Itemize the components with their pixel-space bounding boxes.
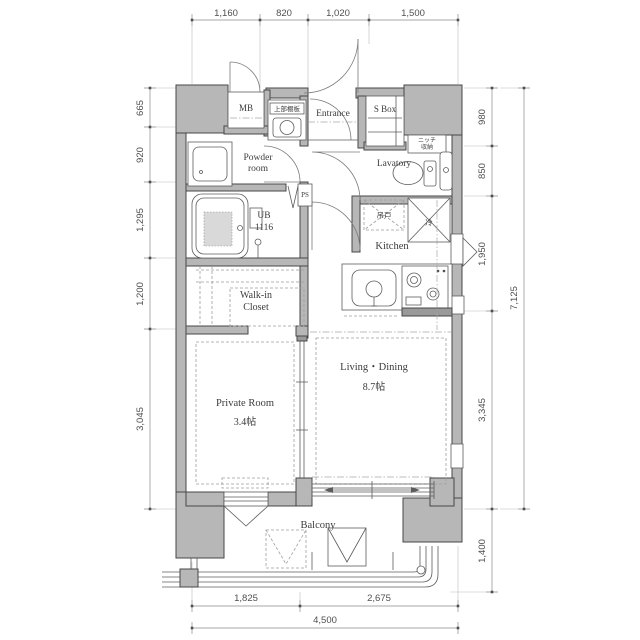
dim-left-5: 3,045 (135, 407, 146, 431)
bath-mat (204, 212, 232, 246)
bath-faucet-icon (255, 239, 261, 245)
private-window-swing (224, 506, 268, 526)
vent-opening (451, 234, 463, 264)
dim-top-1: 1,160 (214, 8, 238, 19)
private-room-window (224, 492, 268, 506)
wall-left (176, 133, 186, 492)
dim-top-2: 820 (276, 8, 292, 19)
mb-door-arc (230, 62, 260, 92)
label-hanging-cupboard: 吊戸 (377, 211, 392, 220)
label-wic-1: Walk-in (240, 290, 272, 301)
floor-plan-page: 1,160 820 1,020 1,500 665 920 1,295 1,20… (0, 0, 640, 640)
dim-right-5: 1,400 (477, 539, 488, 563)
private-room-edge (196, 342, 294, 484)
label-wic-2: Closet (243, 302, 269, 313)
label-refrigerator: 冷 (425, 217, 433, 227)
sliding-partition (300, 336, 304, 478)
wall-wic-private (186, 326, 248, 334)
wall-partition-column (296, 478, 312, 506)
ac-pad-dashed-v (266, 530, 306, 564)
wall-corridor-kitchen (352, 196, 360, 252)
dim-top-4: 1,500 (401, 8, 425, 19)
doors (230, 39, 360, 250)
dim-right-2: 850 (477, 163, 488, 179)
entrance-door-arc (304, 39, 358, 93)
stove-knob-2 (443, 270, 446, 273)
dim-left-2: 920 (135, 147, 146, 163)
dim-right-4: 3,345 (477, 398, 488, 422)
lavatory-counter (440, 152, 452, 190)
label-ld-2: 8.7帖 (363, 380, 386, 393)
living-dining-edge (316, 338, 446, 484)
label-kitchen: Kitchen (375, 241, 409, 252)
balcony-pipe-box (180, 569, 198, 587)
wall-entrance-sbox (358, 96, 366, 148)
label-lavatory: Lavatory (377, 159, 412, 169)
floor-plan-drawing: 1,160 820 1,020 1,500 665 920 1,295 1,20… (0, 0, 640, 640)
dimension-top: 1,160 820 1,020 1,500 (191, 8, 460, 90)
unit-bath-area (192, 184, 312, 258)
label-balcony: Balcony (301, 520, 337, 531)
entrance-area (228, 92, 404, 146)
kitchen-sleeve-opening (451, 296, 464, 314)
dim-bottom-2: 2,675 (367, 593, 391, 604)
label-private-2: 3.4帖 (234, 415, 257, 428)
label-s-box: S Box (374, 104, 397, 114)
powder-room-area (188, 142, 232, 186)
living-areas (196, 336, 446, 484)
kitchen-low-wall (402, 308, 452, 316)
wic-shelf-dash-left (200, 266, 212, 326)
entrance-inner-arc (310, 99, 351, 140)
wall-ub-wic (186, 258, 308, 266)
label-entrance: Entrance (316, 109, 350, 119)
ub-folding-door (288, 186, 298, 208)
sliding-partition-ticks (296, 382, 308, 430)
ac-pad-solid (328, 528, 366, 566)
wall-top-right-block (404, 85, 462, 135)
label-powder-1: Powder (243, 153, 273, 163)
wall-top-left-block (176, 85, 228, 133)
label-niche-1: ニッチ (418, 137, 436, 144)
label-niche-2: 収納 (421, 143, 433, 151)
powder-room-door (264, 146, 300, 182)
dim-left-4: 1,200 (135, 282, 146, 306)
wall-bottom-1 (186, 492, 224, 506)
label-upper-shelf: 上部棚板 (274, 104, 301, 113)
balcony-drain-icon (417, 566, 425, 574)
room-labels: MB 上部棚板 Entrance S Box Powder room Lavat… (216, 103, 436, 531)
dim-right-total: 7,125 (509, 286, 520, 310)
label-powder-2: room (248, 164, 269, 174)
ac-pad-dashed (266, 530, 306, 568)
wic-shelf-dash-top (196, 270, 306, 282)
label-ub-2: 1116 (255, 223, 274, 233)
private-window-sill-dash (222, 478, 268, 488)
dim-left-1: 665 (135, 100, 146, 116)
vent-flap-icon (463, 238, 477, 266)
label-ub-1: UB (257, 211, 270, 221)
wall-bottom-2 (268, 492, 296, 506)
vanity-sink (193, 147, 227, 181)
toilet-tank (424, 161, 436, 186)
dim-left-3: 1,295 (135, 208, 146, 232)
label-mb: MB (239, 103, 253, 113)
label-private-1: Private Room (216, 398, 274, 409)
lavatory-door (312, 152, 360, 200)
kitchen-faucet-icon (366, 281, 382, 297)
dim-bottom-total: 4,500 (313, 615, 337, 626)
label-ld-1: Living・Dining (340, 362, 408, 373)
ac-sleeve-opening (451, 444, 463, 468)
stove (402, 266, 448, 308)
dim-right-3: 1,950 (477, 242, 488, 266)
dim-top-3: 1,020 (326, 8, 350, 19)
wall-wic-stub (296, 326, 308, 336)
sliding-partition-cap (297, 336, 307, 341)
label-ps: PS (301, 191, 309, 199)
dim-bottom-1: 1,825 (234, 593, 258, 604)
dim-right-1: 980 (477, 109, 488, 125)
dimension-bottom: 1,825 2,675 4,500 (191, 546, 460, 634)
